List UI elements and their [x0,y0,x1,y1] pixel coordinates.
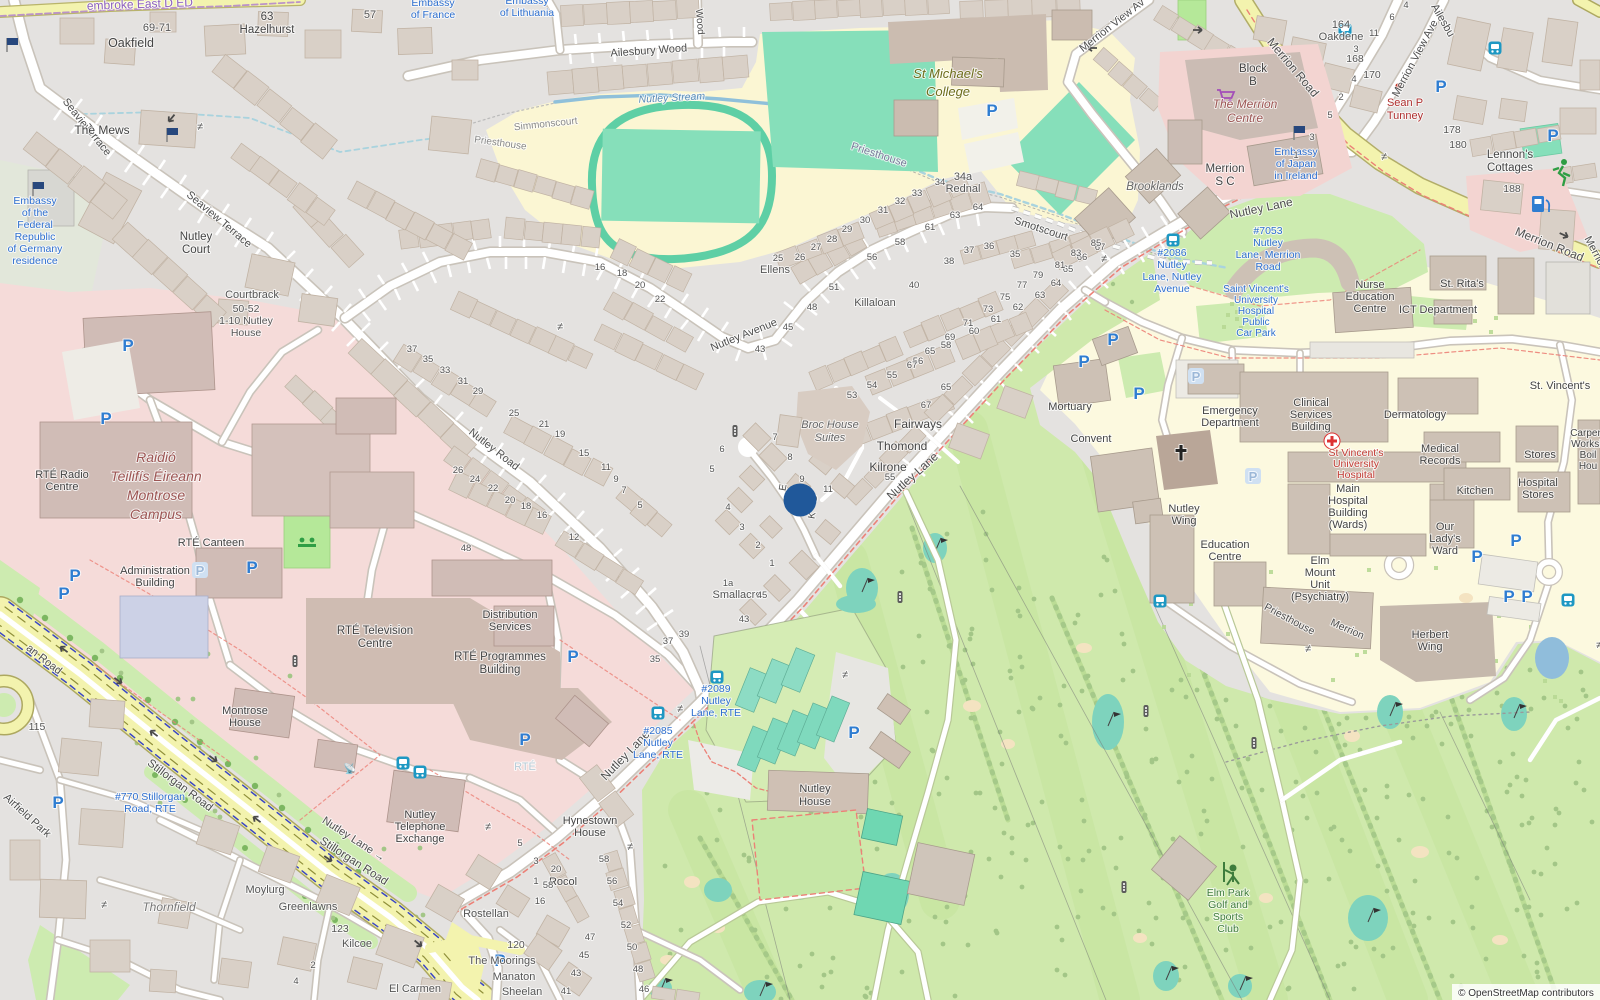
svg-text:6: 6 [719,444,724,455]
svg-text:Republic: Republic [15,231,56,243]
svg-text:© OpenStreetMap contributors: © OpenStreetMap contributors [1458,988,1594,999]
svg-text:38: 38 [944,256,955,267]
svg-text:≠: ≠ [1381,151,1387,163]
svg-text:P: P [100,409,111,428]
svg-text:Boil: Boil [1580,450,1597,461]
svg-text:Elm: Elm [1311,555,1330,567]
svg-text:Main: Main [1336,483,1360,495]
svg-text:≠: ≠ [1305,643,1311,655]
svg-text:Medical: Medical [1421,443,1459,455]
svg-text:P: P [246,558,257,577]
svg-text:30: 30 [860,215,871,226]
svg-text:Courtbrack: Courtbrack [225,289,279,301]
svg-text:Hou: Hou [1579,461,1597,472]
svg-text:Unit: Unit [1310,579,1330,591]
svg-text:≠: ≠ [485,821,491,833]
svg-text:RTÉ: RTÉ [514,760,536,773]
svg-text:Merrion: Merrion [1206,163,1245,175]
svg-text:123: 123 [331,923,349,935]
svg-text:P: P [1078,352,1089,371]
svg-text:Hospital: Hospital [1328,495,1368,507]
svg-text:57: 57 [364,9,376,21]
svg-text:Herbert: Herbert [1412,629,1449,641]
svg-text:85: 85 [1091,238,1102,249]
svg-text:29: 29 [473,386,484,397]
svg-text:45: 45 [783,322,794,333]
svg-text:64: 64 [973,202,984,213]
svg-text:Sheelan: Sheelan [502,986,542,998]
svg-text:22: 22 [488,483,499,494]
svg-text:(Psychiatry): (Psychiatry) [1291,591,1349,603]
svg-text:Building: Building [1291,421,1330,433]
svg-text:Court: Court [182,244,211,256]
svg-text:5: 5 [517,838,522,849]
svg-text:32: 32 [895,196,906,207]
svg-text:4: 4 [1351,74,1356,85]
svg-text:(Wards): (Wards) [1329,519,1368,531]
svg-text:3: 3 [739,522,744,533]
svg-text:Exchange: Exchange [396,833,445,845]
svg-text:P: P [1435,77,1446,96]
svg-text:55: 55 [885,472,896,483]
svg-text:2: 2 [1338,92,1343,103]
svg-text:Hazelhurst: Hazelhurst [240,24,296,36]
svg-text:Sean P: Sean P [1387,97,1423,109]
svg-text:RTÉ Canteen: RTÉ Canteen [178,536,244,549]
svg-text:Mortuary: Mortuary [1048,401,1092,413]
svg-text:69-71: 69-71 [143,22,171,34]
svg-text:48: 48 [461,543,472,554]
svg-text:63: 63 [261,11,274,23]
svg-text:33: 33 [440,365,451,376]
svg-text:16: 16 [535,896,546,907]
svg-text:Nutley: Nutley [701,695,732,707]
svg-text:P: P [196,563,205,578]
svg-text:of the: of the [22,207,48,219]
svg-text:36: 36 [984,241,995,252]
svg-text:Hospital: Hospital [1238,306,1274,317]
svg-text:B: B [1249,76,1257,88]
svg-text:5: 5 [709,464,714,475]
svg-text:63: 63 [1035,290,1046,301]
svg-text:Worksh: Worksh [1571,439,1600,450]
svg-text:Road, RTE: Road, RTE [124,803,176,815]
svg-text:75: 75 [1000,292,1011,303]
svg-text:Campus: Campus [130,506,182,522]
svg-text:Federal: Federal [17,219,53,231]
svg-text:P: P [52,793,63,812]
svg-text:Club: Club [1217,923,1239,935]
svg-text:Hospital: Hospital [1518,477,1558,489]
svg-text:15: 15 [579,448,590,459]
svg-text:65: 65 [941,382,952,393]
svg-text:Block: Block [1239,63,1267,75]
svg-text:P: P [567,647,578,666]
svg-text:120: 120 [507,939,525,951]
svg-text:20: 20 [551,864,562,875]
svg-text:43: 43 [755,344,766,355]
svg-text:62: 62 [1013,302,1024,313]
svg-text:1a: 1a [723,578,734,589]
svg-text:≠: ≠ [101,899,107,911]
svg-text:P: P [122,336,133,355]
svg-text:45: 45 [579,950,590,961]
svg-text:20: 20 [635,280,646,291]
svg-text:Saint Vincent's: Saint Vincent's [1223,284,1289,295]
svg-text:Lane, RTE: Lane, RTE [633,749,683,761]
svg-text:43: 43 [739,614,750,625]
svg-text:≠: ≠ [557,321,563,333]
svg-text:46: 46 [639,984,650,995]
svg-text:16: 16 [595,262,606,273]
svg-text:54: 54 [867,380,878,391]
svg-text:18: 18 [617,268,628,279]
svg-text:6: 6 [1389,12,1394,23]
svg-text:residence: residence [12,255,58,267]
svg-text:Nutley: Nutley [643,737,674,749]
svg-text:≠: ≠ [842,669,848,681]
svg-text:≠: ≠ [677,703,683,715]
svg-text:Moylurg: Moylurg [245,884,284,896]
svg-text:5: 5 [1327,110,1332,121]
svg-text:The Moorings: The Moorings [468,955,536,967]
svg-text:Nutley: Nutley [799,783,831,795]
svg-text:67: 67 [907,360,918,371]
svg-text:Brooklands: Brooklands [1126,181,1184,193]
svg-text:Teilifís Éireann: Teilifís Éireann [110,468,202,484]
svg-text:Oakfield: Oakfield [108,36,154,50]
svg-text:40: 40 [909,280,920,291]
svg-text:58: 58 [543,880,554,891]
svg-text:Lady's: Lady's [1429,533,1461,545]
svg-text:1: 1 [1293,150,1298,161]
svg-text:Embassy: Embassy [505,0,549,7]
svg-text:Killaloan: Killaloan [854,297,896,309]
svg-text:ICT Department: ICT Department [1399,304,1477,316]
svg-text:House: House [799,796,831,808]
svg-text:31: 31 [458,376,469,387]
svg-text:71: 71 [963,318,974,329]
svg-text:Lane, Merrion: Lane, Merrion [1236,249,1301,261]
svg-text:The Mews: The Mews [74,123,129,137]
svg-text:≠: ≠ [197,121,203,133]
svg-text:Embassy: Embassy [13,195,57,207]
svg-text:31: 31 [878,205,889,216]
svg-text:Embassy: Embassy [411,0,455,9]
svg-text:Rostellan: Rostellan [463,908,509,920]
svg-text:Education: Education [1346,291,1395,303]
svg-text:Road: Road [1255,261,1280,273]
svg-text:Carpent: Carpent [1570,428,1600,439]
svg-text:Raidió: Raidió [136,449,176,465]
svg-text:26: 26 [795,252,806,263]
svg-text:Oakdene: Oakdene [1319,31,1364,43]
svg-text:7: 7 [621,485,626,496]
svg-text:164: 164 [1332,19,1350,31]
svg-text:Services: Services [1290,409,1333,421]
svg-text:Manaton: Manaton [493,971,536,983]
svg-text:8: 8 [787,452,792,463]
svg-text:Cottages: Cottages [1487,162,1533,174]
svg-text:41: 41 [561,986,572,997]
svg-text:1-10 Nutley: 1-10 Nutley [219,315,273,327]
svg-text:Car Park: Car Park [1236,328,1276,339]
svg-text:The Merrion: The Merrion [1213,97,1278,111]
svg-text:37: 37 [663,636,674,647]
svg-text:52: 52 [621,920,632,931]
svg-text:Nutley: Nutley [404,809,436,821]
svg-text:Rednal: Rednal [946,183,981,195]
svg-text:21: 21 [539,419,550,430]
svg-text:Nurse: Nurse [1355,279,1384,291]
svg-text:1: 1 [533,876,538,887]
svg-text:House: House [231,327,262,339]
svg-text:11: 11 [823,484,833,495]
svg-text:Distribution: Distribution [482,609,537,621]
svg-text:Stores: Stores [1524,449,1556,461]
svg-text:25: 25 [509,408,520,419]
svg-text:University: University [1234,295,1278,306]
svg-text:7: 7 [772,432,777,443]
svg-text:P: P [1510,531,1521,550]
svg-text:2: 2 [755,540,760,551]
svg-text:3: 3 [1353,44,1358,55]
svg-text:of Lithuania: of Lithuania [500,7,554,19]
svg-text:37: 37 [407,344,418,355]
svg-text:#2085: #2085 [643,725,672,737]
svg-text:27: 27 [811,242,822,253]
svg-text:61: 61 [991,314,1002,325]
svg-text:≠: ≠ [627,841,633,853]
svg-text:P: P [1471,547,1482,566]
svg-text:51: 51 [829,282,840,293]
svg-text:178: 178 [1443,124,1461,136]
svg-text:Smallacre: Smallacre [713,589,762,601]
svg-text:65: 65 [925,346,936,357]
svg-text:28: 28 [827,234,838,245]
svg-text:P: P [58,584,69,603]
svg-text:9: 9 [613,474,618,485]
svg-text:188: 188 [1503,183,1521,195]
svg-text:St. Vincent's: St. Vincent's [1530,380,1591,392]
svg-text:Nutley: Nutley [1168,503,1200,515]
svg-text:67: 67 [921,400,932,411]
svg-text:S C: S C [1215,176,1234,188]
svg-text:Administration: Administration [120,565,190,577]
svg-text:P: P [519,730,530,749]
svg-text:Avenue: Avenue [1154,283,1190,295]
svg-text:Services: Services [489,621,532,633]
svg-text:115: 115 [29,721,46,733]
svg-text:Tunney: Tunney [1387,110,1424,122]
svg-text:Greenlawns: Greenlawns [279,901,338,913]
svg-text:34: 34 [935,177,946,188]
svg-text:P: P [1192,369,1201,384]
svg-text:Records: Records [1420,455,1461,467]
svg-text:81: 81 [1055,260,1066,271]
svg-text:50-52: 50-52 [233,303,260,315]
svg-text:of France: of France [411,9,456,21]
svg-text:Kilcoe: Kilcoe [342,938,372,950]
svg-text:Public: Public [1242,317,1269,328]
svg-text:Telephone: Telephone [395,821,446,833]
svg-text:22: 22 [655,294,666,305]
svg-text:Elm Park: Elm Park [1207,887,1250,899]
svg-text:El Carmen: El Carmen [389,983,441,995]
svg-text:P: P [69,566,80,585]
svg-text:Wing: Wing [1171,515,1196,527]
svg-text:29: 29 [842,224,853,235]
svg-text:P: P [1503,587,1514,606]
svg-text:Lane, RTE: Lane, RTE [691,707,741,719]
svg-text:Dermatology: Dermatology [1384,409,1447,421]
svg-text:Centre: Centre [1227,111,1263,125]
svg-text:P: P [1521,587,1532,606]
svg-text:P: P [1249,469,1258,484]
svg-text:Fairways: Fairways [894,417,942,431]
svg-text:Our: Our [1436,521,1455,533]
svg-text:5: 5 [637,500,642,511]
svg-text:Convent: Convent [1071,433,1112,445]
svg-text:House: House [229,717,261,729]
svg-text:Ward: Ward [1432,545,1458,557]
svg-text:69: 69 [945,332,956,343]
svg-text:19: 19 [555,429,566,440]
svg-text:Clinical: Clinical [1293,397,1328,409]
svg-text:College: College [926,84,970,99]
svg-text:47: 47 [585,932,596,943]
svg-text:Emergency: Emergency [1202,405,1258,417]
svg-text:Montrose: Montrose [222,705,268,717]
svg-text:#770 Stillorgan: #770 Stillorgan [115,791,185,803]
svg-text:35: 35 [423,354,434,365]
svg-text:Building: Building [1328,507,1367,519]
svg-text:56: 56 [867,252,878,263]
svg-text:4: 4 [293,976,298,987]
svg-text:Stores: Stores [1522,489,1554,501]
svg-text:Centre: Centre [358,638,393,650]
svg-text:25: 25 [773,253,784,264]
svg-text:11: 11 [1369,28,1379,39]
svg-text:Broc House: Broc House [801,419,858,431]
svg-text:79: 79 [1033,270,1044,281]
svg-text:Lennon's: Lennon's [1487,149,1534,161]
svg-text:Hospital: Hospital [1337,469,1375,481]
svg-text:4: 4 [1403,0,1408,11]
svg-text:#7053: #7053 [1253,225,1282,237]
svg-text:Thornfield: Thornfield [142,900,196,914]
svg-text:Mount: Mount [1305,567,1336,579]
svg-text:in Ireland: in Ireland [1274,170,1317,182]
svg-text:RTÉ Programmes: RTÉ Programmes [454,650,546,663]
svg-text:61: 61 [925,222,936,233]
svg-text:33: 33 [912,188,923,199]
svg-text:170: 170 [1363,69,1381,81]
svg-text:Building: Building [135,577,174,589]
svg-text:Lane, Nutley: Lane, Nutley [1143,271,1203,283]
svg-text:4: 4 [725,502,730,513]
svg-text:P: P [1547,126,1558,145]
svg-text:63: 63 [950,210,961,221]
svg-text:St. Rita's: St. Rita's [1440,278,1484,290]
svg-text:83: 83 [1071,248,1082,259]
svg-text:Department: Department [1201,417,1258,429]
svg-text:26: 26 [453,465,464,476]
svg-text:35: 35 [1010,249,1021,260]
svg-text:#2086: #2086 [1157,247,1186,259]
svg-text:Nutley: Nutley [1253,237,1284,249]
svg-text:18: 18 [521,501,532,512]
svg-text:37: 37 [964,245,975,256]
svg-text:54: 54 [613,898,624,909]
svg-text:24: 24 [470,474,481,485]
svg-text:64: 64 [1051,278,1062,289]
svg-text:58: 58 [895,237,906,248]
svg-text:St Michael's: St Michael's [913,66,983,81]
svg-text:House: House [574,827,606,839]
svg-text:55: 55 [887,370,898,381]
svg-text:39: 39 [679,629,690,640]
svg-text:Montrose: Montrose [127,487,186,503]
svg-text:43: 43 [571,968,582,979]
svg-text:RTÉ Radio: RTÉ Radio [35,468,89,481]
svg-text:11: 11 [601,462,611,473]
svg-text:35: 35 [650,654,661,665]
svg-text:48: 48 [633,964,644,975]
svg-text:48: 48 [807,302,818,313]
svg-text:of Germany: of Germany [8,243,64,255]
svg-text:9: 9 [799,474,804,485]
svg-text:≠: ≠ [1596,639,1600,651]
svg-text:2: 2 [310,960,315,971]
svg-text:P: P [986,101,997,120]
svg-text:#2089: #2089 [701,683,730,695]
svg-text:73: 73 [983,304,994,315]
svg-text:16: 16 [537,510,548,521]
svg-text:Golf and: Golf and [1208,899,1248,911]
svg-text:Education: Education [1201,539,1250,551]
svg-text:Centre: Centre [1353,303,1386,315]
svg-text:Wing: Wing [1417,641,1442,653]
svg-text:180: 180 [1449,139,1467,151]
svg-text:Ellens: Ellens [760,264,790,276]
svg-text:Wood: Wood [693,8,706,35]
svg-text:Sports: Sports [1213,911,1243,923]
svg-text:✝: ✝ [1173,443,1190,465]
svg-text:34a: 34a [954,171,973,183]
svg-text:1: 1 [769,558,774,569]
svg-text:58: 58 [599,854,610,865]
svg-text:P: P [1133,384,1144,403]
svg-text:3: 3 [533,856,538,867]
svg-text:Suites: Suites [815,432,846,444]
svg-text:Centre: Centre [1208,551,1241,563]
svg-text:Kitchen: Kitchen [1457,485,1494,497]
svg-text:P: P [848,723,859,742]
svg-text:50: 50 [627,942,638,953]
svg-text:Nutley: Nutley [180,231,213,243]
svg-text:3: 3 [1309,132,1314,143]
svg-text:12: 12 [569,532,580,543]
svg-text:77: 77 [1017,280,1028,291]
svg-text:20: 20 [505,495,516,506]
svg-text:Nutley: Nutley [1157,259,1188,271]
svg-text:Hynestown: Hynestown [563,815,617,827]
svg-text:P: P [1107,330,1118,349]
svg-text:≠: ≠ [1101,253,1107,265]
svg-text:53: 53 [847,390,858,401]
svg-text:📡: 📡 [344,762,357,775]
